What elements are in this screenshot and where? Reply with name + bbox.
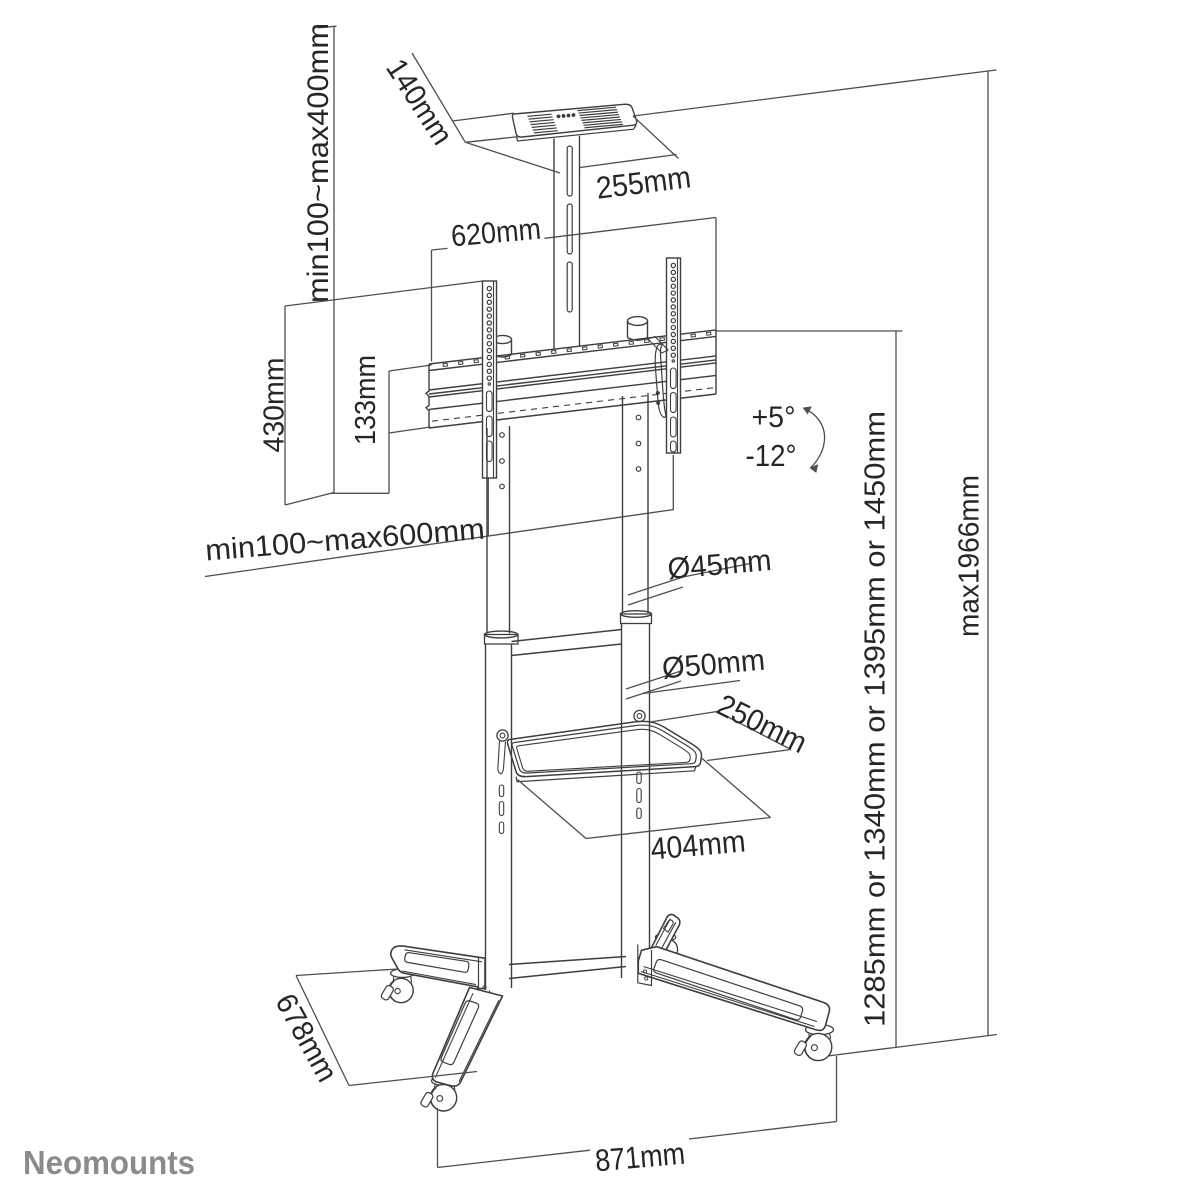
- svg-text:+5°: +5°: [752, 401, 796, 434]
- svg-text:min100~max400mm: min100~max400mm: [302, 23, 335, 303]
- svg-text:133mm: 133mm: [350, 355, 382, 445]
- svg-text:430mm: 430mm: [259, 358, 291, 453]
- svg-text:Neomounts: Neomounts: [23, 1145, 195, 1182]
- svg-text:1285mm or 1340mm or 1395mm or: 1285mm or 1340mm or 1395mm or 1450mm: [860, 411, 892, 1027]
- svg-text:max1966mm: max1966mm: [954, 475, 986, 637]
- svg-text:-12°: -12°: [746, 439, 797, 473]
